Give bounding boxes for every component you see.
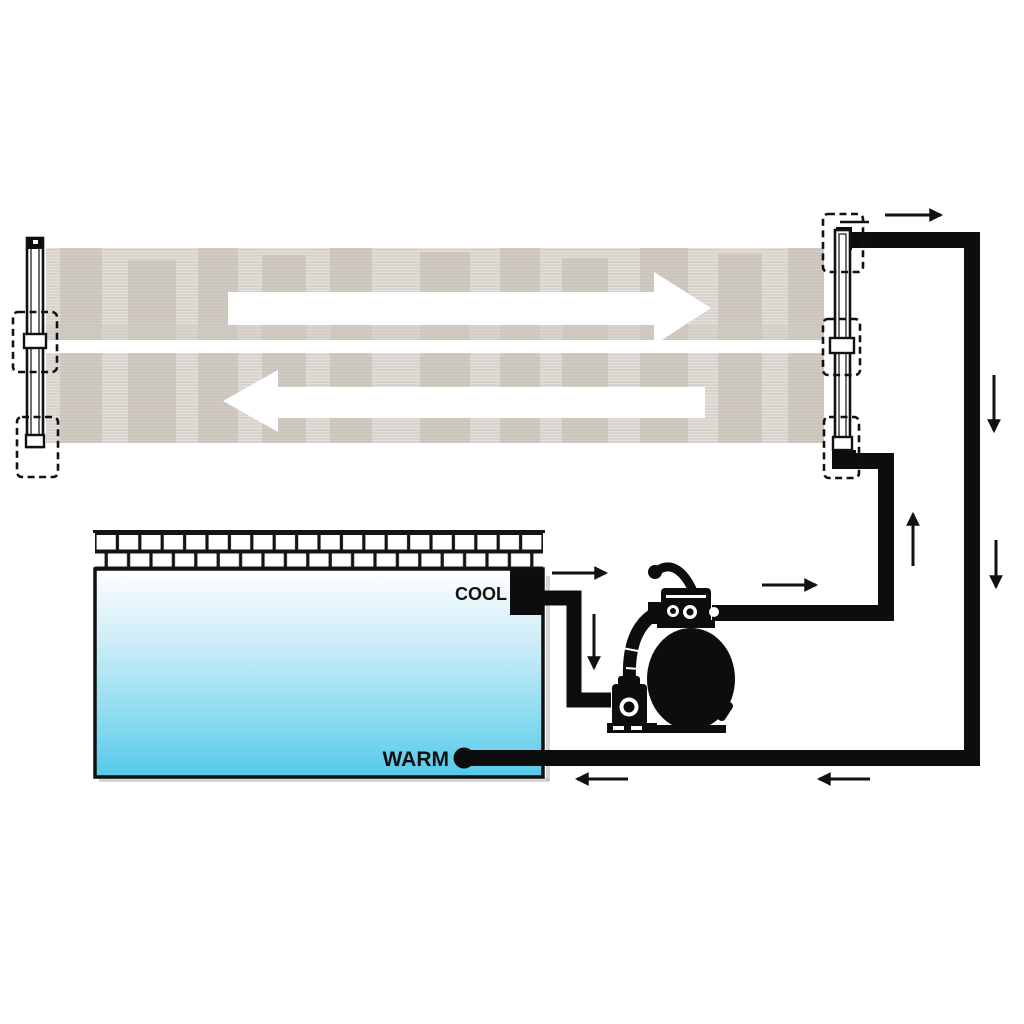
pool-tile-top-line [93, 530, 545, 533]
pump-face-core [624, 702, 635, 713]
collector-bottom-elbow [832, 450, 856, 469]
sand-filter-pump [607, 565, 735, 733]
solar-collector [13, 214, 869, 478]
valve-port-dot [709, 607, 719, 617]
warm-label: WARM [383, 748, 450, 771]
right-manifold-end [833, 437, 852, 450]
left-manifold-cap-dot [33, 240, 38, 244]
right-manifold-union [830, 338, 854, 353]
skimmer [510, 569, 544, 615]
valve-flange [657, 620, 715, 628]
mat-mid-band [46, 325, 824, 340]
valve-slit [666, 595, 706, 598]
pool-tile-coping [95, 533, 543, 569]
cool-suction-pipe [540, 598, 611, 700]
left-manifold-union [24, 334, 46, 348]
valve-left-port [648, 602, 662, 624]
cool-label: COOL [455, 584, 507, 604]
diagram-canvas: COOL WARM [0, 0, 1024, 1024]
solar-pool-heater-diagram: COOL WARM [0, 0, 1024, 1024]
pump-base-slot [613, 726, 624, 730]
mat-center-gap [46, 340, 824, 353]
pump-to-collector-pipe [712, 461, 886, 613]
valve-port-dot-core [670, 608, 676, 614]
pump-base-slot [631, 726, 642, 730]
pool [93, 530, 550, 782]
tank-base [652, 725, 726, 733]
pump-elbow-seam [626, 668, 640, 669]
valve-handle-knob [648, 565, 662, 579]
left-manifold-end [26, 435, 44, 447]
pump-top-cap [618, 676, 640, 688]
valve-port-dot-core [686, 608, 693, 615]
left-manifold-pipe [24, 237, 46, 447]
warm-return-fitting [454, 748, 475, 769]
